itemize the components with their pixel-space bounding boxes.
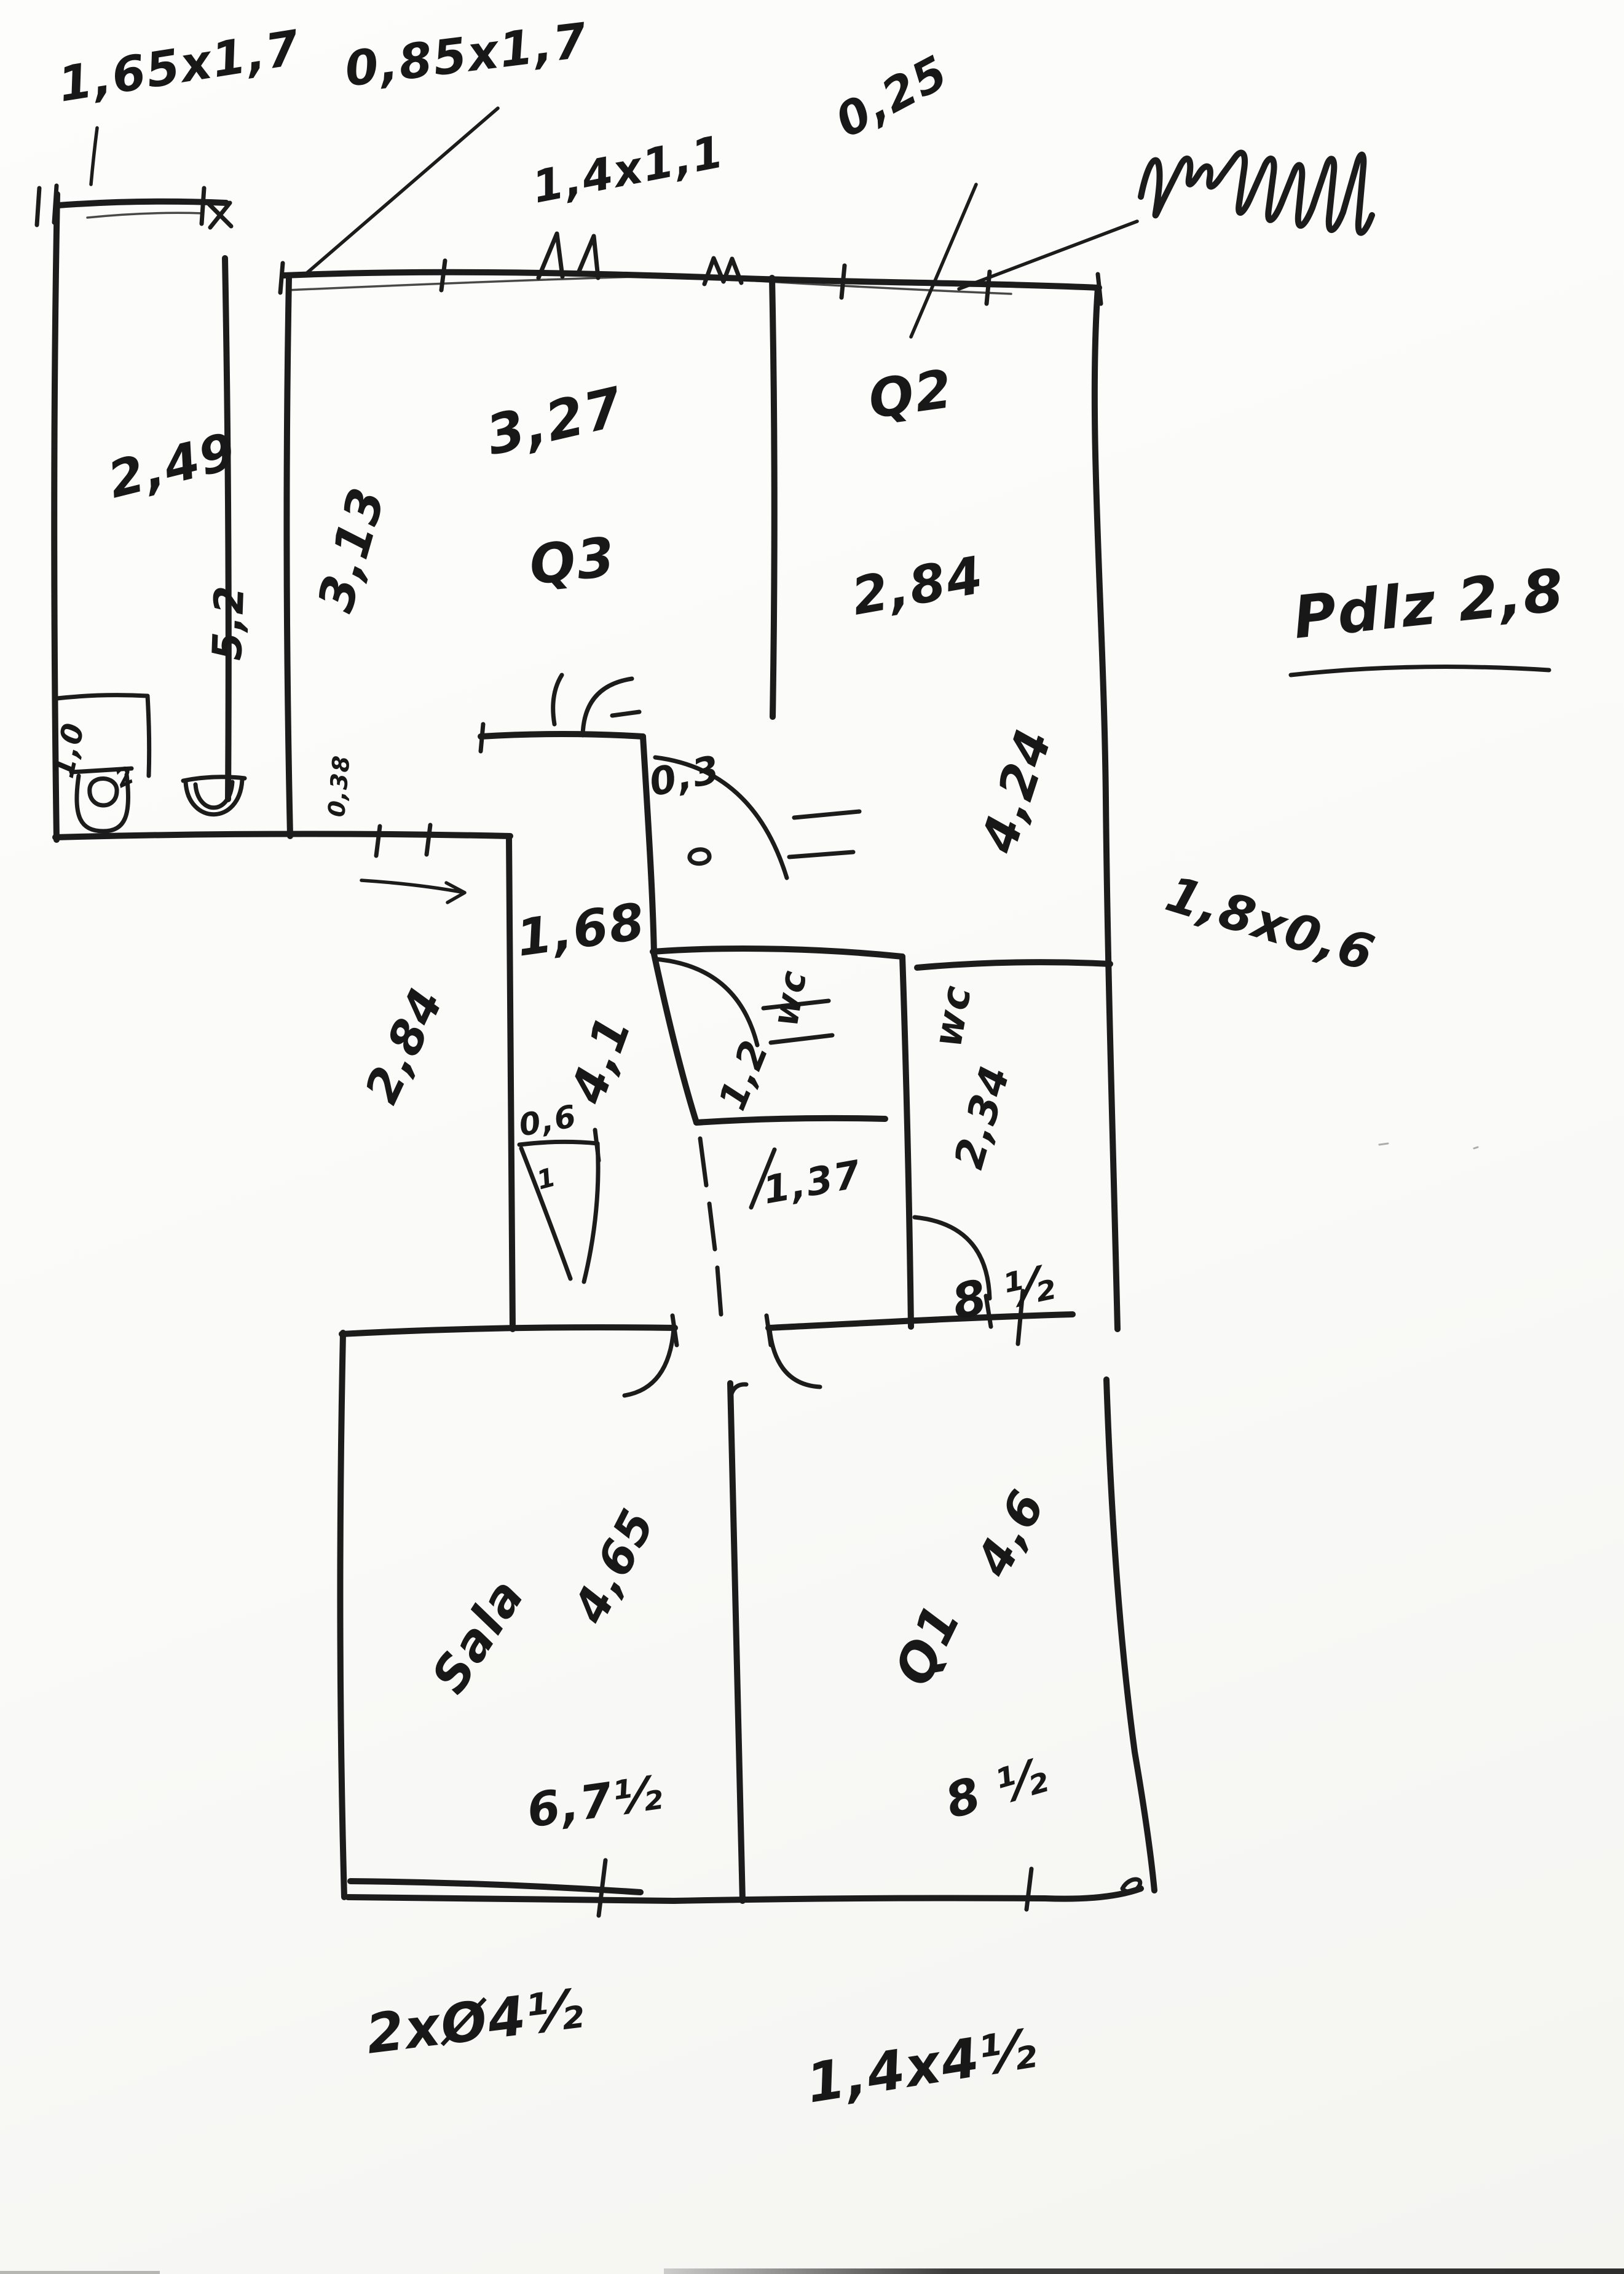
wall-bottom-divider (730, 1383, 743, 1901)
wall-bottom-left (340, 1333, 344, 1897)
wall-wc-top (653, 949, 1110, 968)
tick-south-2 (1027, 1869, 1031, 1909)
tick-room1-left-a (37, 188, 39, 225)
label-hall-height: 4,1 (560, 1008, 642, 1111)
label-wc2-name: wc (925, 981, 980, 1050)
wall-wc1-bottom (696, 1118, 885, 1123)
label-q1-width: 8 ½ (939, 1748, 1054, 1830)
sketch-paper: 1,65x1,7 0,85x1,7 1,4x1,1 0,25 2,49 5,2 … (0, 0, 1624, 2274)
wall-wc-divider (902, 957, 911, 1327)
wall-q3-left (286, 278, 290, 836)
label-hall-width: 1,68 (513, 892, 650, 968)
smudge-b (1474, 1147, 1478, 1148)
label-room1-height: 5,2 (203, 584, 253, 661)
tick-north-1 (280, 263, 283, 293)
label-room2-width: 2,84 (847, 545, 988, 627)
tick-room1-right (202, 188, 204, 224)
label-wc1-name: wc (764, 966, 815, 1029)
label-room2-name: Q2 (865, 358, 957, 431)
toilet-seat (90, 778, 117, 805)
label-room2-height: 4,24 (969, 722, 1063, 860)
wall-q3-q2-divider (772, 278, 775, 717)
label-sala-width: 6,7½ (524, 1765, 666, 1838)
flourish-south-end (1122, 1879, 1140, 1892)
smudge-a (1379, 1143, 1388, 1145)
label-room3-left: 3,13 (307, 481, 396, 618)
label-corridor-small: 0,38 (323, 754, 355, 818)
wall-corridor-bottom (55, 834, 510, 837)
label-q1-height: 4,6 (966, 1481, 1057, 1585)
floor-plan-sketch: 1,65x1,7 0,85x1,7 1,4x1,1 0,25 2,49 5,2 … (0, 0, 1624, 2274)
niche-tick (595, 1130, 599, 1161)
tick-q3-bottom (481, 724, 483, 751)
tick-north-2 (441, 261, 445, 290)
x-mark-room1 (209, 203, 231, 227)
label-niche-dim: 0,6 (516, 1098, 580, 1143)
door-knob-q2 (690, 850, 709, 864)
label-wc2-dim: 1,8x0,6 (1159, 865, 1381, 982)
leader-top-door (305, 108, 498, 274)
niche-top (519, 1142, 597, 1145)
closet-right (148, 696, 149, 776)
label-room3-name: Q3 (526, 525, 618, 597)
photo-bottom-edge-left (0, 2271, 160, 2274)
label-note-bottom-center: 1,4x4½ (802, 2016, 1041, 2115)
door-arc-q3 (583, 679, 632, 735)
entrance-arrow (361, 880, 465, 902)
wall-east (1095, 288, 1117, 1329)
leader-dim-top-left (91, 128, 97, 184)
label-dim-top-door: 0,85x1,7 (342, 13, 591, 98)
underline-height-note (1291, 667, 1549, 675)
tick-room1-left-b (54, 186, 57, 223)
door-hatch-q2-a (794, 811, 859, 818)
door-arc-bottom-right (770, 1329, 820, 1387)
door-arc-bottom-left (625, 1329, 674, 1396)
photo-bottom-edge (664, 2268, 1624, 2274)
leader-wall-thickness (911, 184, 976, 337)
label-dim-window: 1,4x1,1 (528, 125, 728, 213)
label-wc1-width: 1,2 (709, 1033, 778, 1116)
niche-right (584, 1143, 598, 1282)
label-wc1-length: 1,37 (760, 1151, 865, 1213)
door-hatch-wc1-b (771, 1035, 832, 1043)
tick-corridor-b (427, 825, 430, 855)
wall-room1-right (225, 258, 229, 799)
label-room1-width: 2,49 (103, 422, 242, 510)
label-wc2-height: 2,34 (945, 1060, 1019, 1174)
wall-room1-top-ghost (87, 213, 203, 218)
label-hall-offset: 0,3 (645, 746, 724, 805)
wall-hall-left (509, 836, 513, 1329)
label-note-bottom-left: 2xØ4½ (363, 1976, 587, 2066)
label-sala-height: 4,65 (562, 1500, 666, 1633)
tick-north-3 (842, 266, 845, 298)
wall-bottom-south-a (350, 1881, 641, 1892)
label-dim-top-left: 1,65x1,7 (55, 20, 304, 113)
wall-bottom-right (1106, 1380, 1154, 1890)
label-q1-name: Q1 (883, 1594, 973, 1694)
label-wc-area: 8 ½ (947, 1255, 1060, 1331)
wall-north-ghost-a (288, 277, 636, 290)
label-hall-left-dim: 2,84 (354, 979, 454, 1111)
leader-scribble (959, 221, 1137, 289)
wall-q3-bottom (481, 734, 643, 736)
scribble-annotation (1141, 152, 1372, 232)
label-height-note: Pdlz 2,8 (1290, 556, 1568, 652)
wall-hall-right-dashed (700, 1139, 721, 1314)
door-arc-q3-ghost (553, 675, 562, 724)
basin-top (183, 777, 245, 781)
closet-top (57, 695, 148, 698)
dash-above-hall (612, 712, 639, 716)
door-hatch-q2-b (789, 852, 853, 857)
label-dim-wall: 0,25 (827, 45, 957, 148)
label-room3-width: 3,27 (481, 374, 630, 467)
label-sala-name: Sala (420, 1568, 535, 1703)
tick-corridor-a (376, 826, 380, 856)
